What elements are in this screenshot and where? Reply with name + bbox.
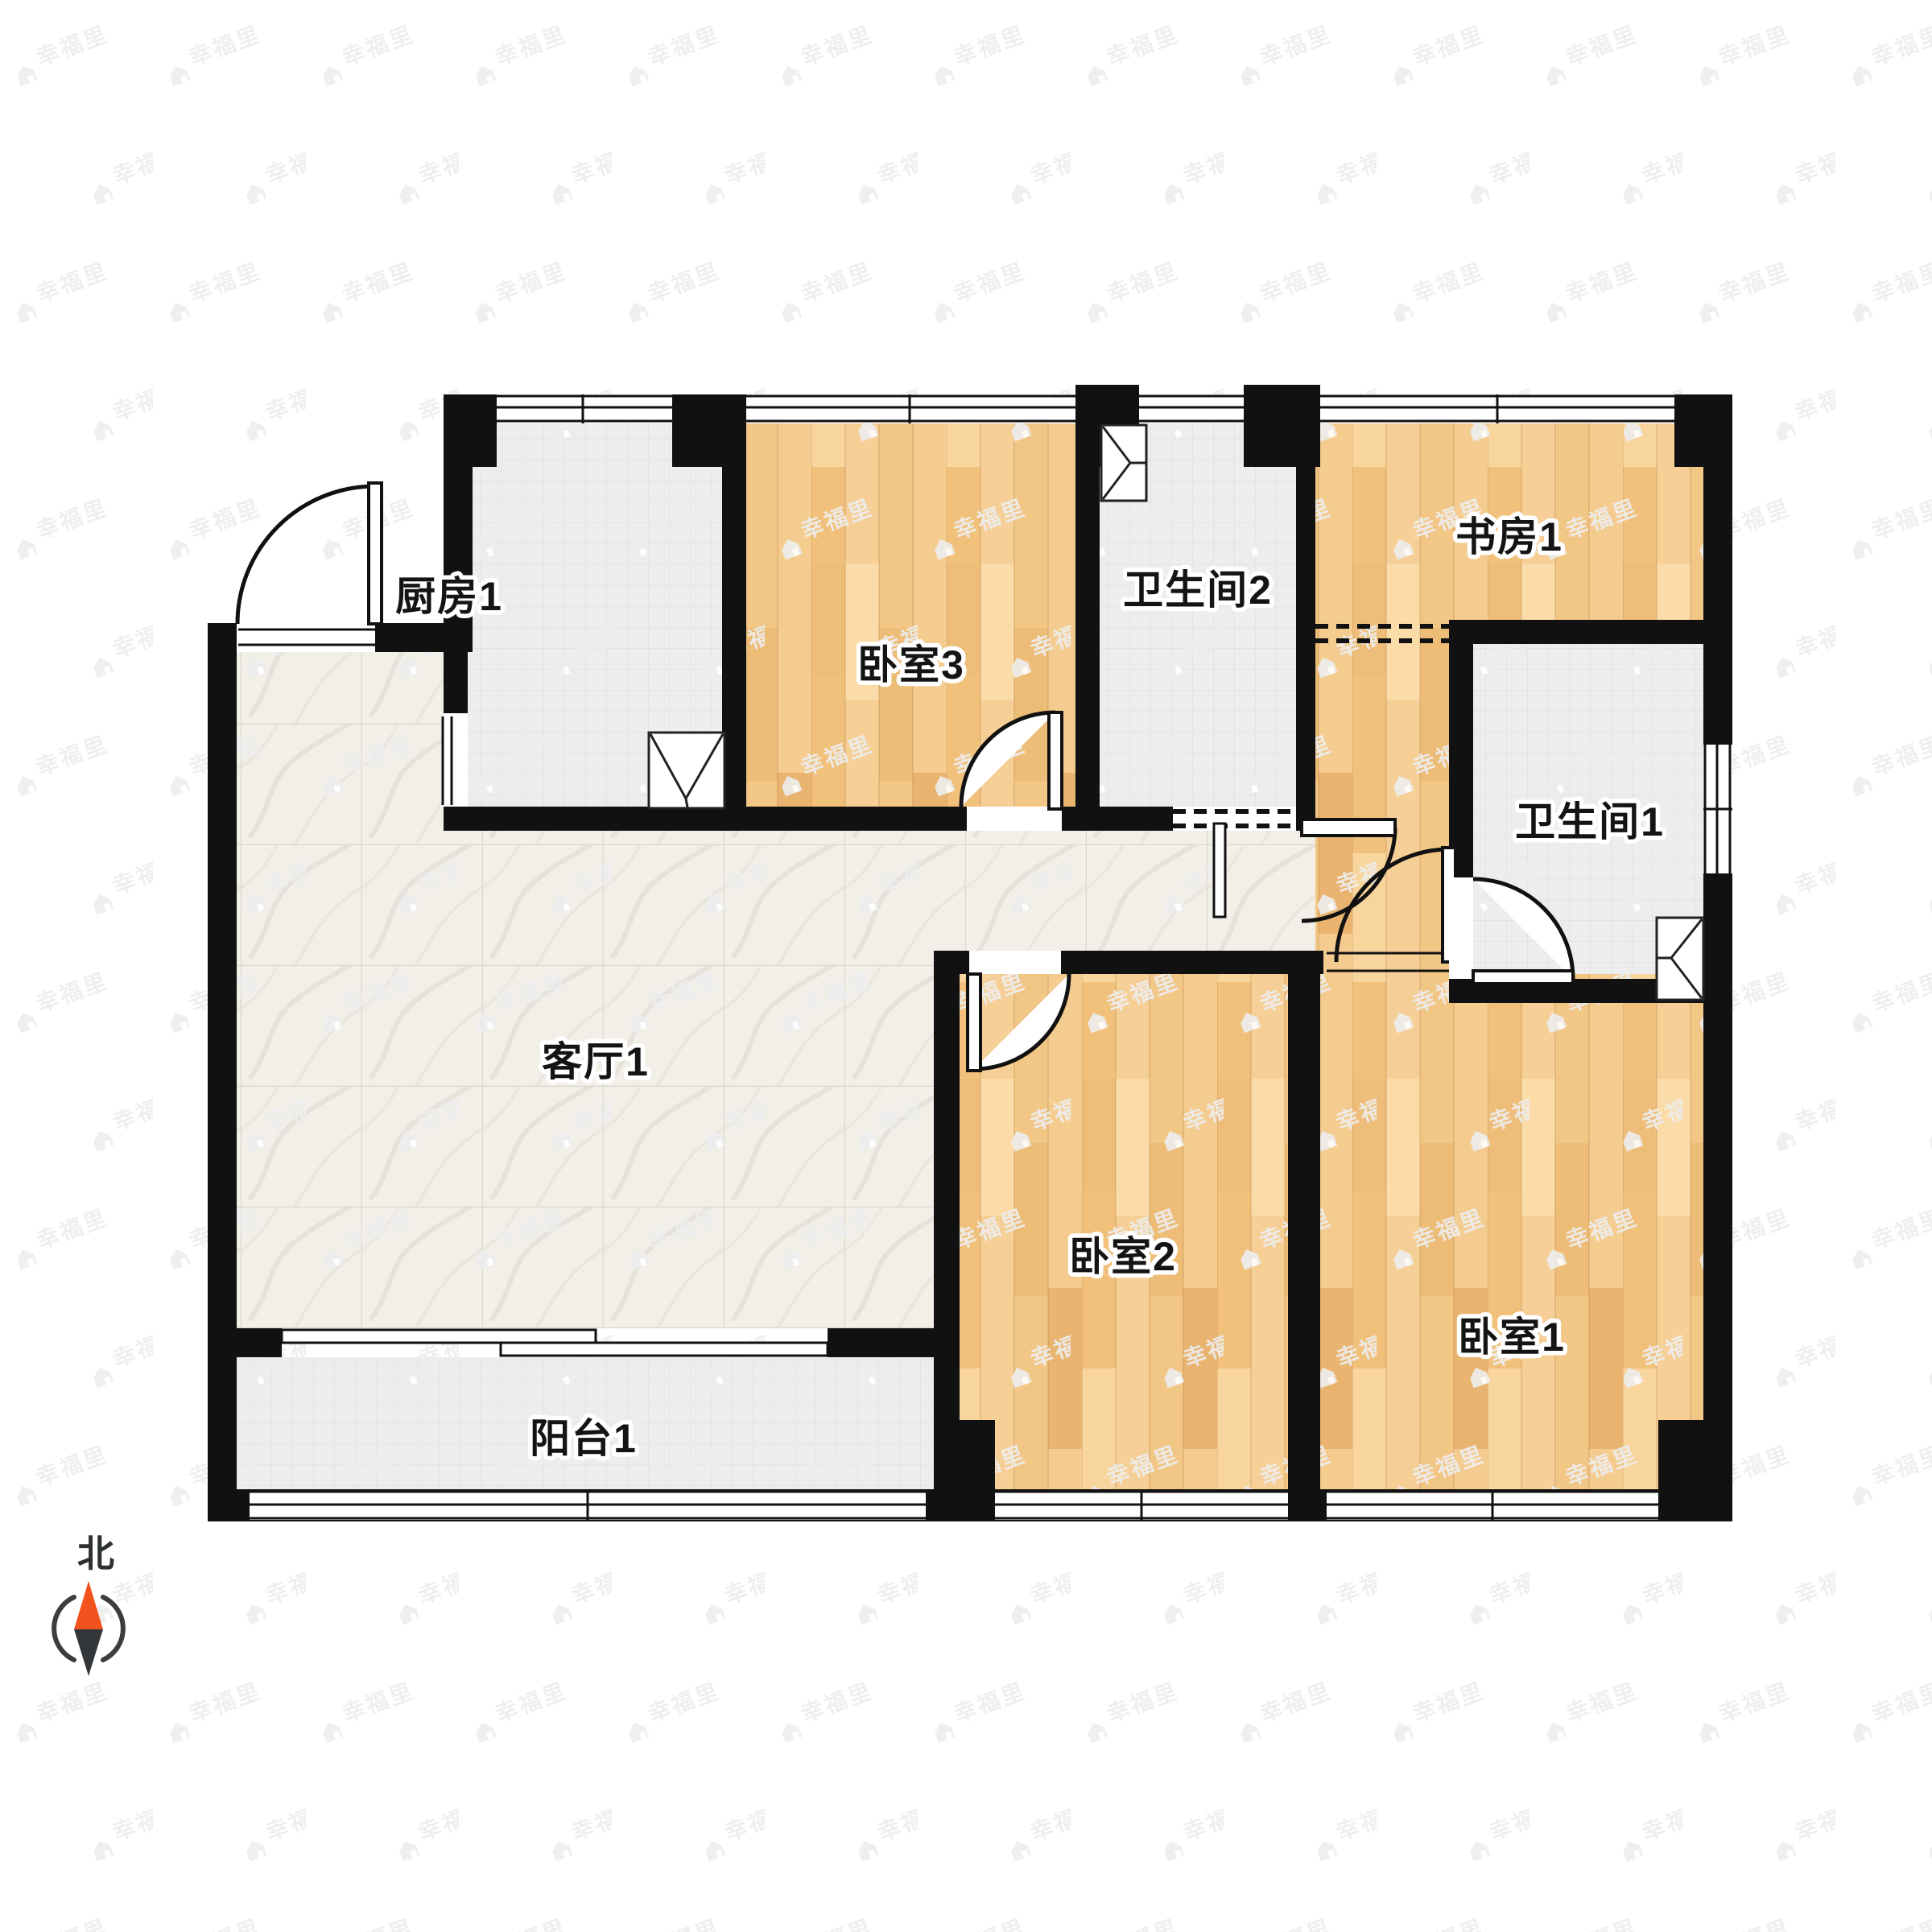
room-label-bedroom3: 卧室3 (857, 642, 965, 687)
bedroom3-window (746, 394, 1075, 423)
hallway-door-leaf (1302, 819, 1395, 836)
compass-north-label: 北 (77, 1533, 114, 1575)
bathroom1-side-window (1703, 745, 1732, 873)
room-label-bedroom1: 卧室1 (1458, 1315, 1566, 1360)
bedroom3-door-leaf (1049, 712, 1062, 809)
bedroom2-window (995, 1491, 1288, 1520)
bedroom2-door-leaf (968, 974, 980, 1071)
room-label-balcony: 阳台1 (530, 1416, 638, 1461)
room-label-kitchen: 厨房1 (395, 574, 503, 619)
study-window (1320, 394, 1674, 423)
kitchen-opening (443, 713, 468, 807)
sliding-panel-1 (282, 1330, 596, 1343)
bathroom1-basin (1657, 918, 1703, 1000)
room-label-study: 书房1 (1455, 514, 1563, 559)
room-label-bedroom2: 卧室2 (1069, 1234, 1177, 1279)
bathroom2-window (1139, 394, 1244, 423)
sliding-panel-2 (501, 1343, 828, 1356)
room-label-bathroom1: 卫生间1 (1515, 799, 1665, 844)
entry-door-leaf (369, 483, 382, 624)
floorplan-canvas: 幸福里 幸福里 (0, 0, 1932, 1932)
bedroom1-window (1327, 1491, 1658, 1520)
bathroom1-door-leaf (1473, 971, 1573, 984)
kitchen-appliance (649, 733, 724, 808)
corridor-door-leaf (1214, 824, 1225, 917)
bathroom2-shower (1101, 425, 1146, 501)
room-label-bathroom2: 卫生间2 (1123, 568, 1273, 613)
floorplan-page: 幸福里 幸福里 (0, 0, 1932, 1932)
kitchen-window (497, 394, 672, 423)
balcony-window (250, 1491, 926, 1520)
room-label-living: 客厅1 (542, 1039, 650, 1084)
